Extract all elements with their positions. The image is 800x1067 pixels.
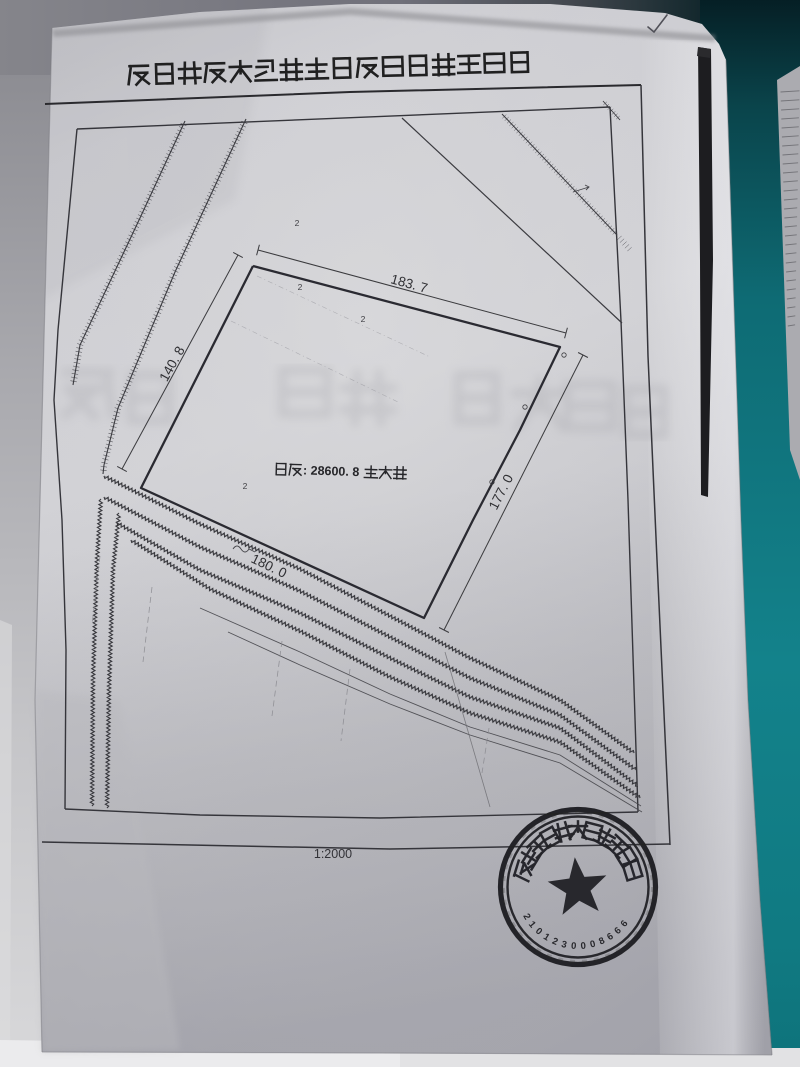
svg-text:2: 2: [361, 314, 366, 324]
svg-text:2: 2: [243, 481, 248, 491]
svg-text:0: 0: [571, 941, 577, 952]
svg-text:0: 0: [580, 941, 586, 952]
svg-text:2: 2: [295, 218, 300, 228]
svg-text:2: 2: [298, 282, 303, 292]
svg-text:: 28600. 8: : 28600. 8: [303, 463, 360, 479]
svg-text:1:2000: 1:2000: [314, 847, 352, 861]
